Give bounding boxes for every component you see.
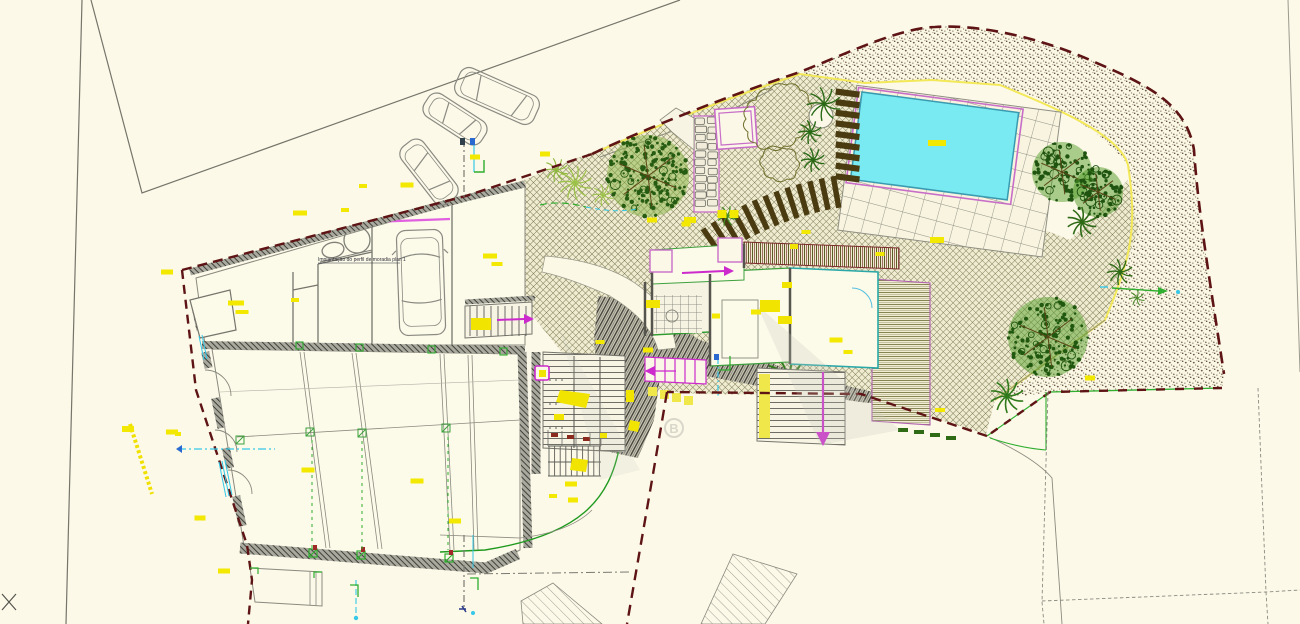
- svg-text:B: B: [669, 421, 678, 436]
- svg-text:Implantação do perfil de morad: Implantação do perfil de moradia plan 1: [318, 257, 406, 263]
